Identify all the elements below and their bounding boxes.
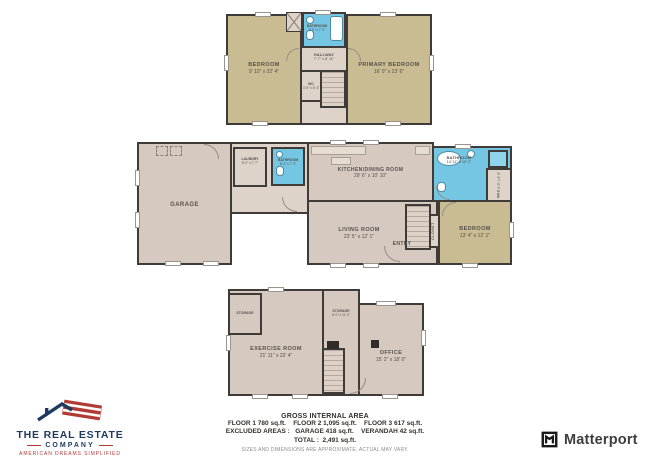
window: [224, 55, 229, 71]
window: [421, 330, 426, 346]
dash-right: [99, 445, 113, 446]
sink-icon: [467, 150, 475, 158]
window: [255, 12, 271, 17]
room-storage-left-floor1: [228, 293, 262, 335]
window: [165, 261, 181, 266]
window: [363, 140, 379, 145]
company-name-line1: THE REAL ESTATE: [12, 429, 128, 441]
window: [380, 12, 396, 17]
window: [429, 55, 434, 71]
bathtub-icon: [330, 16, 343, 41]
matterport-logo: Matterport: [541, 431, 638, 448]
window: [382, 394, 398, 399]
ceiling-hatch: [156, 146, 168, 156]
room-garage-floor2: [137, 142, 232, 265]
window: [135, 170, 140, 186]
window: [135, 212, 140, 228]
house-flag-icon: [36, 399, 104, 423]
window: [226, 335, 231, 351]
room-primary-bedroom-floor3: [346, 14, 432, 125]
stairs-floor1: [322, 348, 345, 394]
window: [455, 144, 471, 149]
stairs-floor3: [320, 70, 346, 108]
window: [330, 140, 346, 145]
sink-icon: [276, 151, 283, 158]
room-laundry-floor2: [233, 147, 267, 187]
window: [315, 10, 331, 15]
window: [363, 263, 379, 268]
matterport-icon: [541, 431, 558, 448]
window: [330, 263, 346, 268]
room-label-wic: WIC 4' 6" x 6' 5": [486, 168, 512, 202]
ceiling-hatch: [170, 146, 182, 156]
understair-storage-marker: [327, 341, 339, 349]
room-office-floor1: [358, 303, 424, 396]
closet-x-floor3: [286, 12, 302, 32]
window: [509, 222, 514, 238]
window: [203, 261, 219, 266]
room-wc-floor3: [300, 70, 322, 102]
window: [252, 121, 268, 126]
kitchen-appliance: [415, 146, 430, 155]
window: [376, 301, 396, 306]
sink-icon: [306, 16, 314, 24]
company-logo: THE REAL ESTATE COMPANY AMERICAN DREAMS …: [12, 399, 128, 457]
window: [385, 121, 401, 126]
company-name-line2: COMPANY: [12, 442, 128, 449]
fireplace-marker: [371, 340, 379, 348]
window: [252, 394, 268, 399]
matterport-wordmark: Matterport: [564, 432, 638, 448]
toilet-icon: [276, 166, 284, 176]
toilet-icon: [306, 30, 314, 40]
window: [268, 287, 284, 292]
window: [292, 394, 308, 399]
floor-plan-page: BEDROOM 9' 10" x 22' 4" PRIMARY BEDROOM …: [0, 0, 650, 460]
toilet-icon: [437, 182, 446, 192]
window: [462, 263, 478, 268]
room-label-closet: CLOSET: [427, 214, 440, 248]
company-tagline: AMERICAN DREAMS SIMPLIFIED: [12, 451, 128, 457]
shower-icon: [488, 150, 508, 168]
dash-left: [27, 445, 41, 446]
kitchen-island: [331, 157, 351, 165]
kitchen-counter: [311, 146, 366, 155]
bathtub-icon: [437, 151, 461, 166]
